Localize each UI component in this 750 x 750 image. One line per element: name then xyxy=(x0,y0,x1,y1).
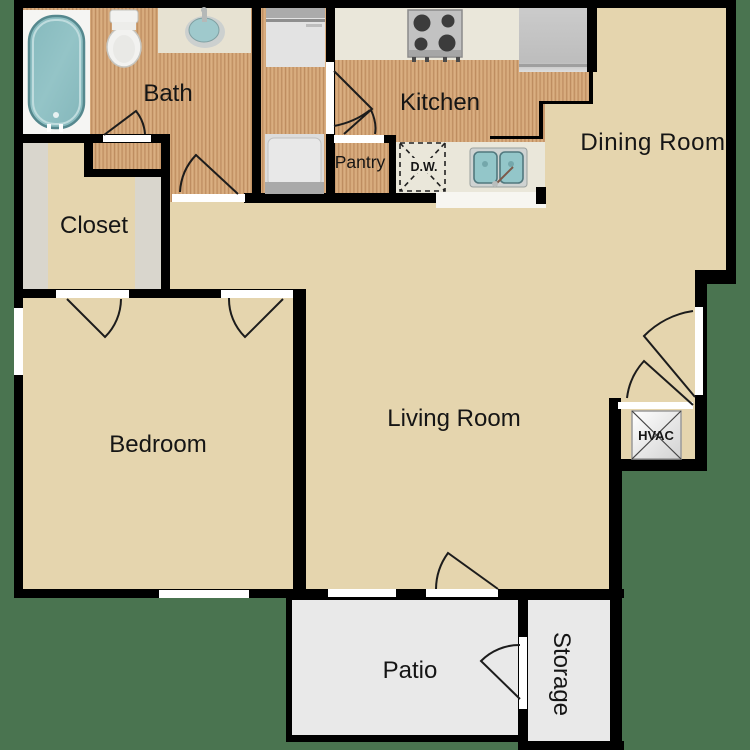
svg-text:Pantry: Pantry xyxy=(335,152,386,172)
svg-text:Living Room: Living Room xyxy=(387,405,520,432)
svg-text:Patio: Patio xyxy=(383,657,438,684)
svg-text:Kitchen: Kitchen xyxy=(400,89,480,116)
svg-text:D.W.: D.W. xyxy=(410,160,437,174)
svg-text:Bedroom: Bedroom xyxy=(109,431,206,458)
svg-text:Dining Room: Dining Room xyxy=(580,129,725,156)
svg-text:Storage: Storage xyxy=(548,632,575,716)
svg-text:Bath: Bath xyxy=(143,80,192,107)
svg-text:HVAC: HVAC xyxy=(638,428,674,443)
svg-text:Closet: Closet xyxy=(60,212,128,239)
